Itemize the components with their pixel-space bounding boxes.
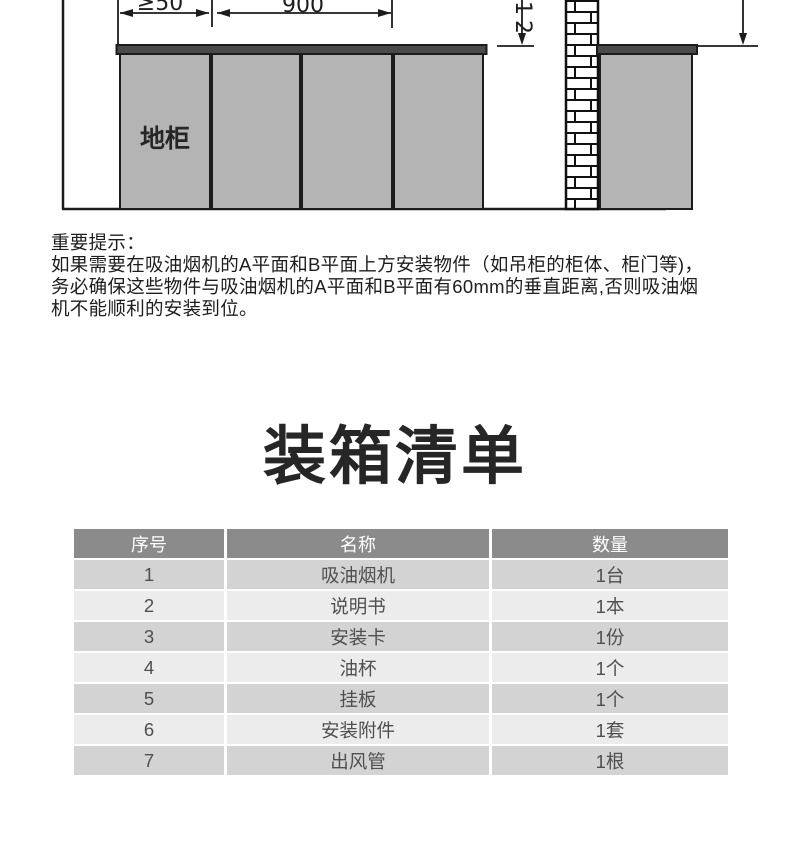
cell-name: 出风管 (227, 746, 489, 775)
notice-line: 如果需要在吸油烟机的A平面和B平面上方安装物件（如吊柜的柜体、柜门等)， (51, 254, 761, 276)
base-cabinet-panel-3 (302, 54, 392, 209)
width-dim-label: 900 (282, 0, 324, 18)
cell-name: 挂板 (227, 684, 489, 713)
height-dim-arrow-right (739, 33, 747, 45)
table-row: 5 挂板 1个 (74, 684, 728, 713)
gap-dim-label: ≥50 (137, 0, 183, 16)
gap-dim-arrow-left (120, 9, 133, 17)
cell-qty: 1个 (492, 684, 728, 713)
cabinet-right (600, 54, 692, 209)
cell-no: 1 (74, 560, 224, 589)
height-dim-label: 12 (510, 1, 535, 39)
countertop-right (597, 45, 697, 54)
cell-name: 吸油烟机 (227, 560, 489, 589)
table-row: 2 说明书 1本 (74, 591, 728, 620)
table-row: 6 安装附件 1套 (74, 715, 728, 744)
base-cabinet-panel-4 (394, 54, 483, 209)
width-dim-arrow-left (217, 9, 230, 17)
table-row: 7 出风管 1根 (74, 746, 728, 775)
cell-no: 2 (74, 591, 224, 620)
table-row: 3 安装卡 1份 (74, 622, 728, 651)
cell-qty: 1个 (492, 653, 728, 682)
cell-no: 7 (74, 746, 224, 775)
cell-no: 4 (74, 653, 224, 682)
cell-qty: 1本 (492, 591, 728, 620)
cell-qty: 1套 (492, 715, 728, 744)
width-dim-arrow-right (378, 9, 391, 17)
base-cabinet-panel-2 (212, 54, 300, 209)
cell-qty: 1份 (492, 622, 728, 651)
cell-no: 3 (74, 622, 224, 651)
brick-wall (566, 0, 598, 209)
packing-list-title: 装箱清单 (0, 406, 790, 497)
column-header-name: 名称 (227, 529, 489, 558)
cell-qty: 1台 (492, 560, 728, 589)
cell-name: 安装附件 (227, 715, 489, 744)
gap-dim-arrow-right (196, 9, 209, 17)
table-header-row: 序号 名称 数量 (74, 529, 728, 558)
important-notice: 重要提示： 如果需要在吸油烟机的A平面和B平面上方安装物件（如吊柜的柜体、柜门等… (51, 232, 761, 320)
cell-name: 油杯 (227, 653, 489, 682)
column-header-qty: 数量 (492, 529, 728, 558)
notice-line: 务必确保这些物件与吸油烟机的A平面和B平面有60mm的垂直距离,否则吸油烟 (51, 276, 761, 298)
base-cabinet-label: 地柜 (140, 125, 190, 153)
cell-qty: 1根 (492, 746, 728, 775)
cell-name: 说明书 (227, 591, 489, 620)
installation-diagram: 地柜 ≥50 900 12 (0, 0, 790, 216)
table-row: 4 油杯 1个 (74, 653, 728, 682)
cell-no: 6 (74, 715, 224, 744)
cell-name: 安装卡 (227, 622, 489, 651)
countertop-left (117, 45, 487, 54)
packing-list-table: 序号 名称 数量 1 吸油烟机 1台 2 说明书 1本 3 安装卡 1份 4 油… (71, 527, 731, 777)
cell-no: 5 (74, 684, 224, 713)
notice-title: 重要提示： (51, 232, 761, 254)
notice-line: 机不能顺利的安装到位。 (51, 298, 761, 320)
column-header-no: 序号 (74, 529, 224, 558)
table-row: 1 吸油烟机 1台 (74, 560, 728, 589)
